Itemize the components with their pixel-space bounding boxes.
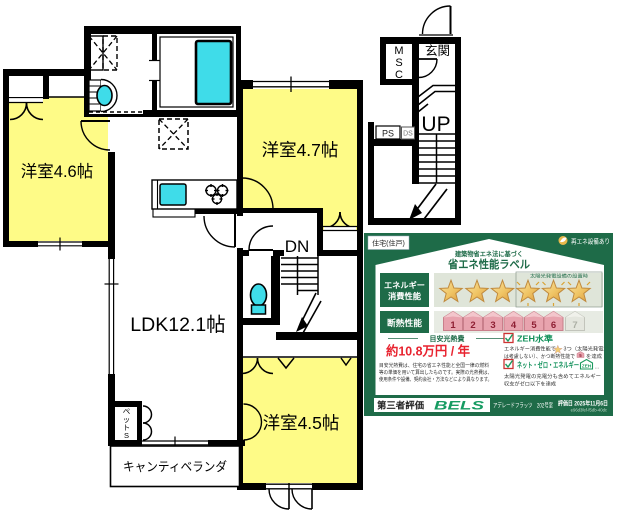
svg-text:BELS: BELS bbox=[434, 398, 484, 412]
svg-text:DS: DS bbox=[403, 131, 413, 138]
svg-text:消費性能: 消費性能 bbox=[388, 291, 421, 301]
svg-text:住宅(住戸): 住宅(住戸) bbox=[372, 239, 405, 248]
svg-text:省エネ性能ラベル: 省エネ性能ラベル bbox=[447, 257, 530, 271]
svg-text:建築物省エネ法に基づく: 建築物省エネ法に基づく bbox=[454, 249, 523, 258]
svg-text:S: S bbox=[395, 57, 402, 69]
svg-text:C: C bbox=[395, 69, 403, 81]
svg-text:3つ（太陽光発電: 3つ（太陽光発電 bbox=[564, 345, 605, 353]
svg-text:アデレードフラッツ 202号室: アデレードフラッツ 202号室 bbox=[493, 402, 553, 410]
svg-text:洋室4.6帖: 洋室4.6帖 bbox=[21, 162, 93, 181]
svg-text:評価日 2025年11月6日: 評価日 2025年11月6日 bbox=[558, 400, 608, 408]
svg-text:玄関: 玄関 bbox=[425, 43, 450, 58]
svg-text:...: ... bbox=[595, 365, 600, 371]
svg-text:洋室4.5帖: 洋室4.5帖 bbox=[263, 413, 340, 433]
svg-text:4: 4 bbox=[511, 320, 517, 331]
svg-text:1: 1 bbox=[450, 320, 456, 331]
svg-text:目安光熱費: 目安光熱費 bbox=[430, 334, 465, 343]
svg-text:使用条件や設備、契約会社・方法などにより異なります。: 使用条件や設備、契約会社・方法などにより異なります。 bbox=[379, 375, 492, 383]
svg-text:ネット・ゼロ・エネルギー: ネット・ゼロ・エネルギー bbox=[517, 360, 579, 370]
svg-text:2: 2 bbox=[470, 320, 475, 331]
svg-text:洋室4.7帖: 洋室4.7帖 bbox=[262, 140, 339, 160]
svg-text:LDK12.1帖: LDK12.1帖 bbox=[130, 314, 225, 336]
svg-text:太陽光発電設備の設置時: 太陽光発電設備の設置時 bbox=[530, 273, 589, 280]
svg-text:6: 6 bbox=[551, 320, 556, 331]
svg-text:3: 3 bbox=[490, 320, 495, 331]
svg-text:M: M bbox=[394, 45, 403, 57]
svg-text:ZEH: ZEH bbox=[582, 364, 592, 369]
svg-text:ZEH水準: ZEH水準 bbox=[517, 334, 553, 344]
svg-text:エネルギー: エネルギー bbox=[384, 280, 425, 290]
svg-text:UP: UP bbox=[421, 113, 450, 136]
svg-text:第三者評価: 第三者評価 bbox=[377, 400, 425, 411]
svg-text:約10.8万円 / 年: 約10.8万円 / 年 bbox=[386, 344, 470, 359]
svg-text:断熱性能: 断熱性能 bbox=[387, 318, 422, 328]
svg-text:PS: PS bbox=[382, 129, 394, 139]
svg-text:は考慮しない）、かつ断熱性能で: は考慮しない）、かつ断熱性能で bbox=[504, 352, 575, 360]
svg-text:DN: DN bbox=[285, 237, 310, 256]
svg-text:目安光熱費は、住宅の省エネ性能と全国一律の燃料: 目安光熱費は、住宅の省エネ性能と全国一律の燃料 bbox=[379, 361, 490, 369]
svg-text:S: S bbox=[124, 431, 129, 440]
svg-text:7: 7 bbox=[572, 320, 577, 331]
svg-text:再エネ設備あり: 再エネ設備あり bbox=[571, 237, 610, 246]
svg-text:太陽光発電の充電分も含めてエネルギー: 太陽光発電の充電分も含めてエネルギー bbox=[504, 372, 601, 380]
svg-text:e96d3fef-f5db-40dc: e96d3fef-f5db-40dc bbox=[571, 408, 607, 413]
svg-text:等の単価を用いて算出したものです。実際の光熱費は、: 等の単価を用いて算出したものです。実際の光熱費は、 bbox=[379, 368, 492, 376]
svg-text:エネルギー消費性能で: エネルギー消費性能で bbox=[504, 345, 556, 353]
svg-text:を達成: を達成 bbox=[586, 352, 603, 360]
svg-text:キャンティベランダ: キャンティベランダ bbox=[123, 459, 227, 474]
svg-text:収支がゼロ以下を達成: 収支がゼロ以下を達成 bbox=[504, 380, 557, 388]
svg-text:5: 5 bbox=[531, 320, 537, 331]
